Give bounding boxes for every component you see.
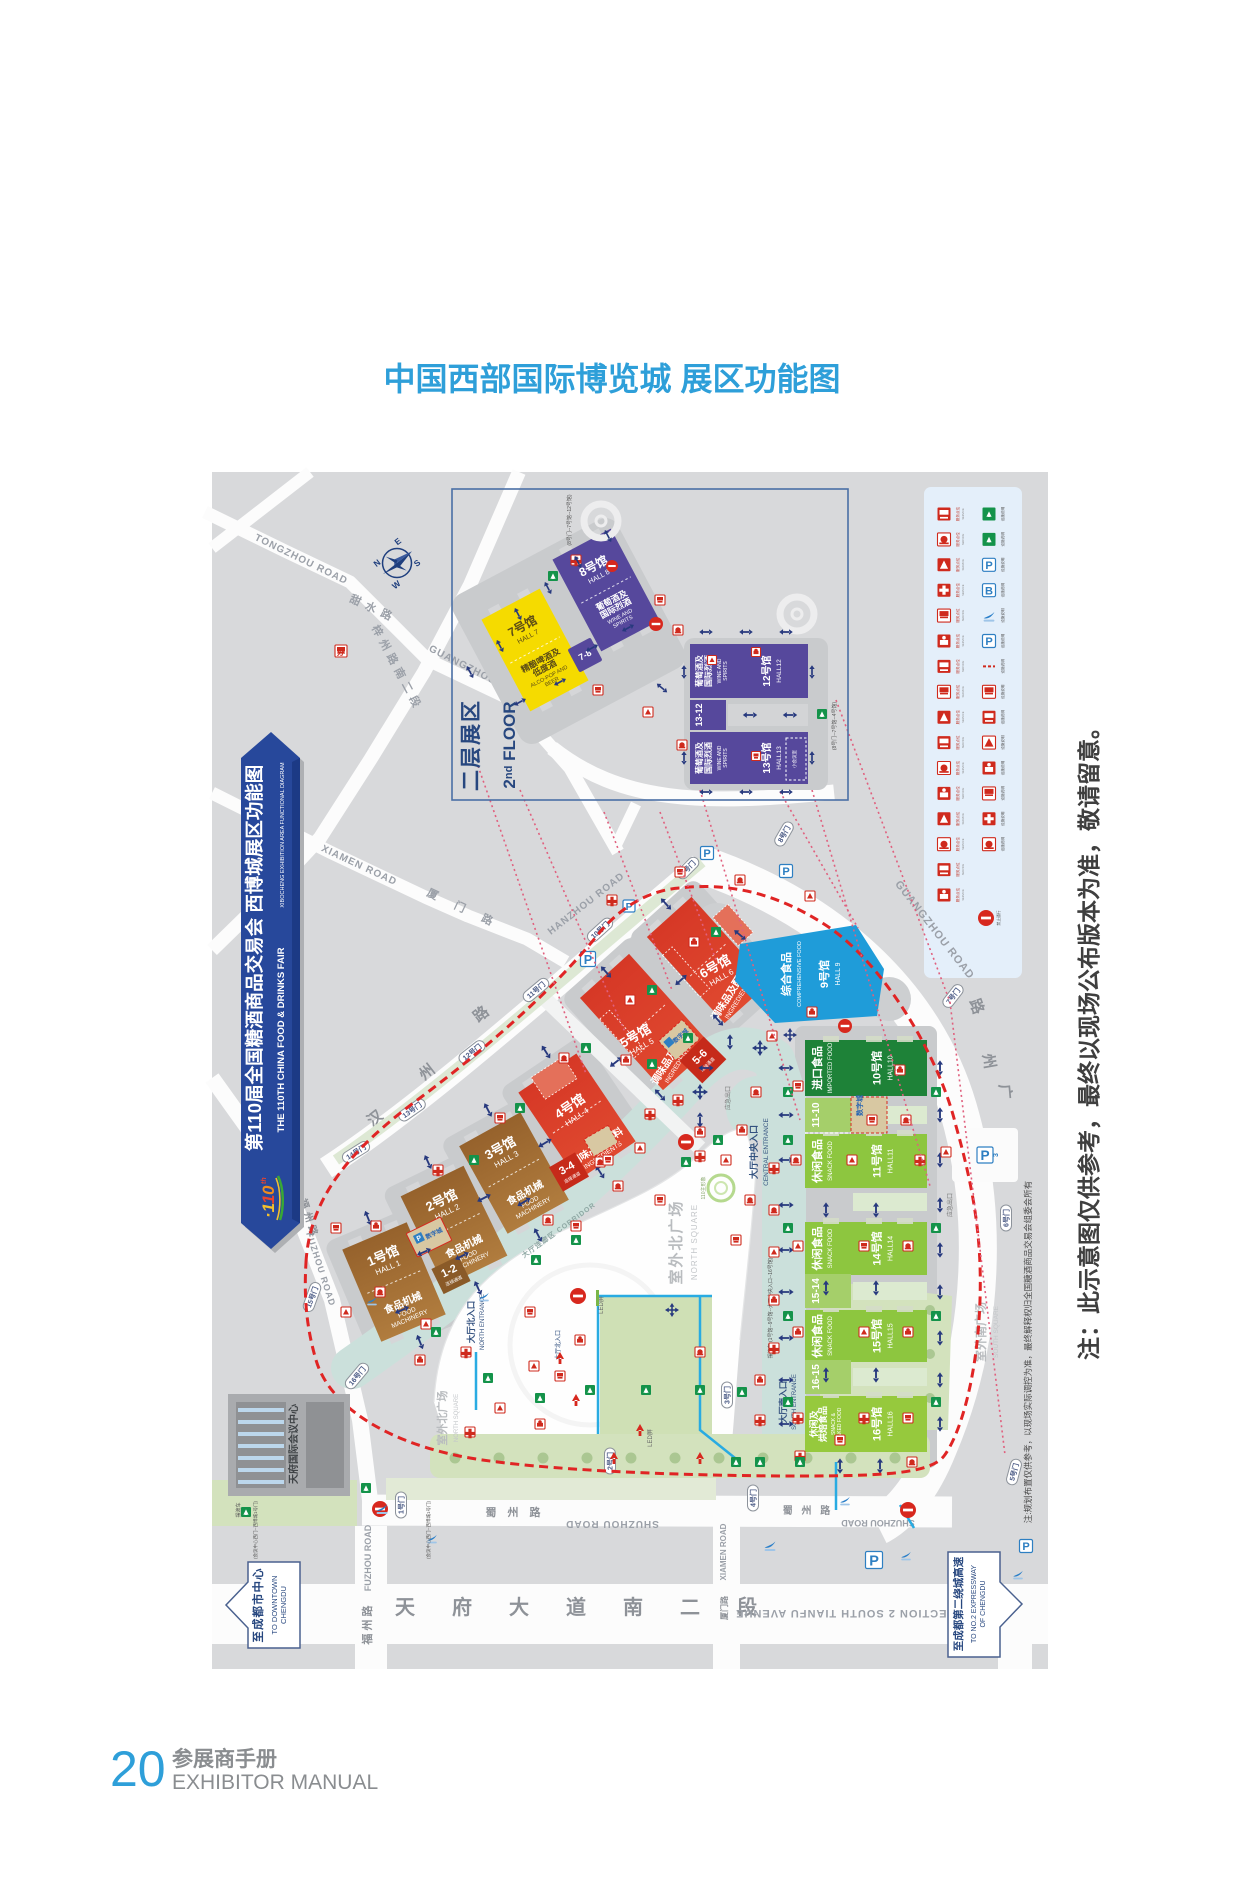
svg-text:12号馆: 12号馆 (760, 655, 773, 686)
svg-text:·1: ·1 (259, 1203, 278, 1218)
svg-text:HALL14: HALL14 (888, 1236, 895, 1261)
svg-text:HALL13: HALL13 (776, 746, 783, 770)
svg-text:SERVICE: SERVICE (961, 533, 965, 545)
svg-text:室外南广场: 室外南广场 (973, 1302, 988, 1362)
svg-text:P: P (584, 952, 593, 967)
svg-text:至成都市中心: 至成都市中心 (251, 1568, 265, 1643)
svg-text:P: P (980, 1148, 989, 1163)
svg-text:IMPORTED FOOD: IMPORTED FOOD (828, 1042, 834, 1093)
svg-text:进口食品: 进口食品 (810, 1046, 824, 1090)
svg-text:休闲食品: 休闲食品 (810, 1139, 824, 1184)
svg-text:TO NO.2 EXPRESSWAY: TO NO.2 EXPRESSWAY (971, 1565, 978, 1643)
svg-text:SERVICE: SERVICE (961, 889, 965, 901)
svg-text:摆渡车: 摆渡车 (235, 1502, 242, 1517)
svg-text:休闲食品: 休闲食品 (810, 1314, 824, 1359)
svg-text:14号馆: 14号馆 (870, 1231, 884, 1265)
svg-text:6号门: 6号门 (1002, 1209, 1011, 1227)
svg-text:中国西部国际博览城 展区功能图: 中国西部国际博览城 展区功能图 (384, 361, 841, 397)
svg-text:P: P (869, 1553, 879, 1569)
svg-text:数字城: 数字城 (855, 1095, 864, 1116)
svg-text:(8号门--7号馆--4号馆): (8号门--7号馆--4号馆) (831, 702, 838, 751)
svg-text:1号门: 1号门 (397, 1496, 406, 1514)
svg-text:NORTH SQUARE: NORTH SQUARE (454, 1394, 460, 1442)
svg-text:注：此示意图仅供参考，最终以现场公布版本为准，敬请留意。: 注：此示意图仅供参考，最终以现场公布版本为准，敬请留意。 (1076, 716, 1102, 1360)
svg-text:OF CHENGDU: OF CHENGDU (980, 1580, 987, 1627)
svg-text:(8号门--7号馆--12号馆): (8号门--7号馆--12号馆) (566, 494, 573, 545)
svg-text:设施说明: 设施说明 (1000, 633, 1005, 648)
svg-text:15号馆: 15号馆 (870, 1319, 884, 1353)
svg-text:至成都第二绕城高速: 至成都第二绕城高速 (952, 1556, 965, 1651)
svg-text:服务点位: 服务点位 (955, 633, 960, 648)
svg-text:府: 府 (452, 1595, 472, 1619)
svg-text:大厅中央入口: 大厅中央入口 (748, 1125, 759, 1179)
svg-text:禁止通行: 禁止通行 (996, 910, 1001, 925)
svg-text:设施说明: 设施说明 (1000, 557, 1005, 572)
svg-text:SERVICE: SERVICE (961, 686, 965, 698)
svg-text:110主形象: 110主形象 (700, 1177, 707, 1200)
svg-text:SERVICE: SERVICE (961, 610, 965, 622)
svg-text:THE 110TH CHINA FOOD & DRINKS: THE 110TH CHINA FOOD & DRINKS FAIR (276, 947, 287, 1132)
svg-text:16-15: 16-15 (811, 1364, 822, 1390)
svg-text:设施说明: 设施说明 (1000, 786, 1005, 801)
svg-text:设施说明: 设施说明 (1000, 760, 1005, 775)
svg-text:二层展区: 二层展区 (460, 699, 483, 791)
svg-text:10号馆: 10号馆 (870, 1051, 884, 1085)
svg-text:烘焙食品: 烘焙食品 (817, 1406, 828, 1442)
svg-text:大厅北入口: 大厅北入口 (466, 1301, 476, 1344)
svg-text:13号馆: 13号馆 (760, 742, 773, 773)
svg-text:9号馆: 9号馆 (817, 960, 831, 988)
svg-text:服务点位: 服务点位 (955, 760, 960, 775)
svg-text:蜀 州 路: 蜀 州 路 (783, 1504, 834, 1517)
svg-text:葡萄酒及: 葡萄酒及 (694, 741, 704, 775)
svg-text:COMPREHENSIVE FOOD: COMPREHENSIVE FOOD (797, 941, 803, 1007)
svg-text:设施说明: 设施说明 (1000, 735, 1005, 750)
svg-text:第110届全国糖酒商品交易会 西博城展区功能图: 第110届全国糖酒商品交易会 西博城展区功能图 (244, 765, 265, 1152)
svg-text:P: P (1022, 1541, 1029, 1553)
svg-text:服务点位: 服务点位 (955, 506, 960, 521)
svg-text:参展商手册: 参展商手册 (172, 1747, 277, 1771)
svg-text:3号门: 3号门 (723, 1386, 732, 1404)
svg-text:HALL 9: HALL 9 (835, 962, 842, 985)
svg-text:服务点位: 服务点位 (955, 557, 960, 572)
svg-text:15-14: 15-14 (811, 1278, 822, 1304)
svg-text:SPIRITS: SPIRITS (723, 661, 729, 681)
svg-text:3: 3 (993, 1153, 1000, 1157)
svg-text:SECTION 2 SOUTH TIANFU AVENUE: SECTION 2 SOUTH TIANFU AVENUE (735, 1607, 955, 1619)
svg-text:办: 办 (337, 647, 345, 657)
svg-text:SOUTH SQUARE: SOUTH SQUARE (993, 1305, 1000, 1358)
svg-text:SERVICE: SERVICE (961, 635, 965, 647)
svg-text:设施说明: 设施说明 (1000, 506, 1005, 521)
svg-text:SNACK FOOD: SNACK FOOD (828, 1315, 834, 1355)
svg-text:(会议中心西门--西博城1号门): (会议中心西门--西博城1号门) (425, 1501, 432, 1559)
svg-text:应急出口: 应急出口 (946, 1193, 954, 1217)
svg-text:XIAMEN ROAD: XIAMEN ROAD (719, 1523, 728, 1580)
svg-text:11号馆: 11号馆 (870, 1144, 884, 1178)
svg-text:FUZHOU ROAD: FUZHOU ROAD (363, 1524, 373, 1591)
svg-text:SERVICE: SERVICE (961, 762, 965, 774)
svg-text:葡萄酒及: 葡萄酒及 (694, 654, 704, 688)
svg-text:SERVICE: SERVICE (961, 838, 965, 850)
svg-text:EXHIBITOR MANUAL: EXHIBITOR MANUAL (172, 1771, 378, 1794)
svg-text:P: P (703, 848, 710, 860)
svg-text:B: B (985, 585, 993, 597)
svg-text:SERVICE: SERVICE (961, 559, 965, 571)
svg-text:广: 广 (995, 1083, 1014, 1100)
svg-text:服务点位: 服务点位 (955, 608, 960, 623)
svg-text:SERVICE: SERVICE (961, 864, 965, 876)
svg-text:th: th (261, 1177, 268, 1184)
svg-text:SERVICE: SERVICE (961, 711, 965, 723)
svg-text:HALL12: HALL12 (776, 659, 783, 683)
svg-text:HALL10: HALL10 (888, 1055, 895, 1080)
svg-text:SNACK FOOD: SNACK FOOD (828, 1228, 834, 1268)
svg-text:P: P (985, 636, 992, 648)
svg-text:设施说明: 设施说明 (1000, 684, 1005, 699)
svg-text:TO DOWNTOWN: TO DOWNTOWN (270, 1576, 279, 1635)
svg-text:SERVICE: SERVICE (961, 660, 965, 672)
svg-text:SERVICE: SERVICE (961, 584, 965, 596)
svg-text:小会议室: 小会议室 (791, 750, 798, 768)
svg-text:SERVICE: SERVICE (961, 737, 965, 749)
svg-text:CHENGDU: CHENGDU (279, 1586, 288, 1624)
svg-text:设施说明: 设施说明 (1000, 583, 1005, 598)
svg-text:厦门路: 厦门路 (719, 1595, 729, 1620)
svg-text:天: 天 (395, 1597, 416, 1619)
svg-text:16号馆: 16号馆 (870, 1407, 884, 1441)
svg-text:休闲食品: 休闲食品 (810, 1227, 824, 1272)
svg-text:室外北广场: 室外北广场 (667, 1199, 685, 1284)
svg-text:服务点位: 服务点位 (955, 887, 960, 902)
svg-text:应急出口: 应急出口 (724, 1086, 732, 1110)
svg-text:0: 0 (259, 1185, 278, 1195)
svg-text:大: 大 (509, 1596, 529, 1619)
svg-text:LED屏: LED屏 (647, 1429, 654, 1447)
svg-text:SERVICE: SERVICE (961, 813, 965, 825)
svg-text:P: P (985, 560, 992, 572)
svg-text:服务点位: 服务点位 (955, 811, 960, 826)
svg-text:SERVICE: SERVICE (961, 508, 965, 520)
svg-text:HALL16: HALL16 (888, 1411, 895, 1436)
svg-text:服务点位: 服务点位 (955, 735, 960, 750)
svg-text:福 州 路: 福 州 路 (360, 1604, 374, 1645)
svg-text:SHUZHOU ROAD: SHUZHOU ROAD (841, 1518, 915, 1528)
svg-text:NORTH SQUARE: NORTH SQUARE (690, 1204, 699, 1280)
svg-text:二: 二 (680, 1597, 700, 1619)
svg-text:SNACK FOOD: SNACK FOOD (828, 1140, 834, 1180)
svg-text:服务点位: 服务点位 (955, 659, 960, 674)
svg-text:HALL15: HALL15 (888, 1323, 895, 1348)
svg-text:南: 南 (623, 1596, 643, 1619)
svg-text:4号门: 4号门 (749, 1489, 758, 1507)
svg-text:设施说明: 设施说明 (1000, 837, 1005, 852)
svg-text:HALL11: HALL11 (888, 1149, 895, 1174)
svg-text:CENTRAL ENTRANCE: CENTRAL ENTRANCE (763, 1118, 770, 1186)
svg-text:(会议中心西门--西博城1号门): (会议中心西门--西博城1号门) (252, 1501, 259, 1559)
svg-text:服务点位: 服务点位 (955, 837, 960, 852)
svg-text:设施说明: 设施说明 (1000, 710, 1005, 725)
svg-text:天府国际会议中心: 天府国际会议中心 (287, 1404, 300, 1484)
svg-text:20: 20 (110, 1741, 166, 1797)
svg-text:SERVICE: SERVICE (961, 787, 965, 799)
svg-text:服务点位: 服务点位 (955, 862, 960, 877)
svg-text:P: P (782, 866, 789, 878)
svg-text:国际烈酒: 国际烈酒 (703, 742, 713, 774)
svg-text:SHUZHOU ROAD: SHUZHOU ROAD (565, 1518, 659, 1529)
svg-text:设施说明: 设施说明 (1000, 811, 1005, 826)
svg-text:州: 州 (979, 1051, 999, 1070)
svg-text:室外北广场: 室外北广场 (435, 1391, 449, 1446)
svg-text:服务点位: 服务点位 (955, 710, 960, 725)
svg-text:SPIRITS: SPIRITS (723, 748, 729, 768)
svg-text:服务点位: 服务点位 (955, 786, 960, 801)
svg-text:服务点位: 服务点位 (955, 532, 960, 547)
svg-text:11-10: 11-10 (811, 1102, 822, 1127)
svg-text:注:规划布置仅供参考，以现场实际调控为准，最终解释权归全国糖: 注:规划布置仅供参考，以现场实际调控为准，最终解释权归全国糖酒商品交易会组委会所… (1023, 1181, 1033, 1523)
svg-text:13-12: 13-12 (694, 703, 704, 726)
svg-text:设施说明: 设施说明 (1000, 659, 1005, 674)
svg-text:LED屏: LED屏 (598, 1296, 605, 1314)
svg-text:设施说明: 设施说明 (1000, 532, 1005, 547)
svg-text:道: 道 (566, 1595, 586, 1619)
svg-text:服务点位: 服务点位 (955, 684, 960, 699)
svg-text:XIBOCHENG EXHIBITION AREA FUNC: XIBOCHENG EXHIBITION AREA FUNCTIONAL DIA… (280, 762, 286, 908)
svg-text:NORTH ENTRANCE: NORTH ENTRANCE (480, 1294, 486, 1350)
svg-text:综合食品: 综合食品 (779, 952, 793, 996)
svg-text:设施说明: 设施说明 (1000, 608, 1005, 623)
svg-text:蜀 州 路: 蜀 州 路 (485, 1505, 544, 1519)
svg-text:服务点位: 服务点位 (955, 583, 960, 598)
